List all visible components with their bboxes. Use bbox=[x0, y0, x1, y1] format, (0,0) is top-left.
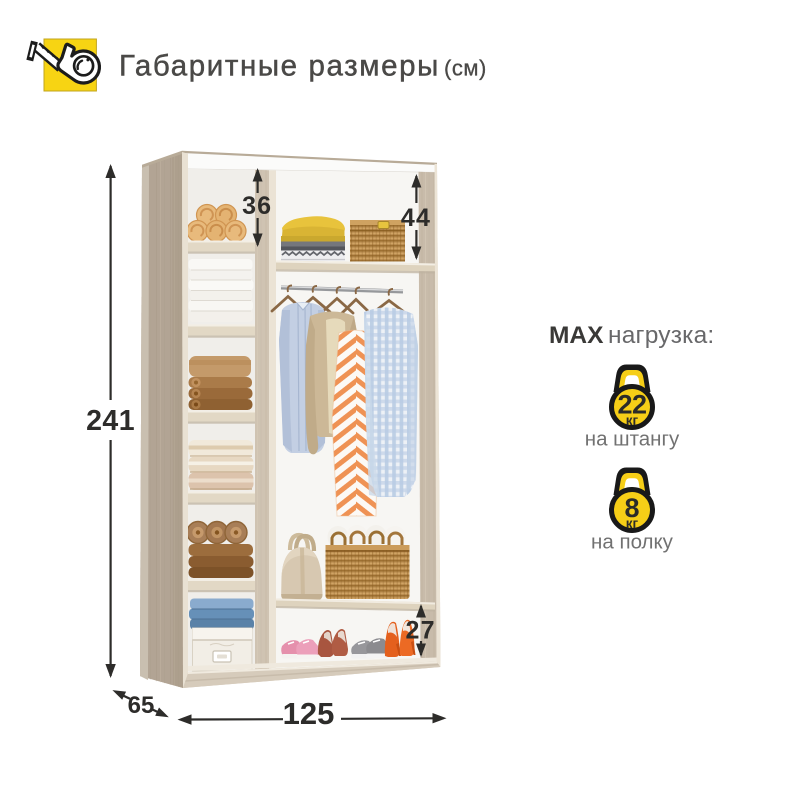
svg-text:65: 65 bbox=[128, 692, 155, 719]
svg-text:125: 125 bbox=[283, 696, 335, 731]
svg-text:на штангу: на штангу bbox=[585, 428, 680, 451]
svg-text:кг: кг bbox=[626, 413, 639, 428]
svg-text:на полку: на полку bbox=[591, 531, 674, 554]
svg-text:MAX: MAX bbox=[549, 322, 604, 349]
svg-text:кг: кг bbox=[626, 516, 639, 531]
svg-text:44: 44 bbox=[401, 204, 431, 232]
svg-text:27: 27 bbox=[405, 617, 435, 645]
svg-text:Габаритные размеры: Габаритные размеры bbox=[119, 50, 440, 83]
svg-text:нагрузка:: нагрузка: bbox=[608, 322, 714, 349]
svg-text:36: 36 bbox=[242, 192, 272, 220]
svg-text:(см): (см) bbox=[444, 56, 487, 81]
svg-text:241: 241 bbox=[86, 405, 135, 437]
